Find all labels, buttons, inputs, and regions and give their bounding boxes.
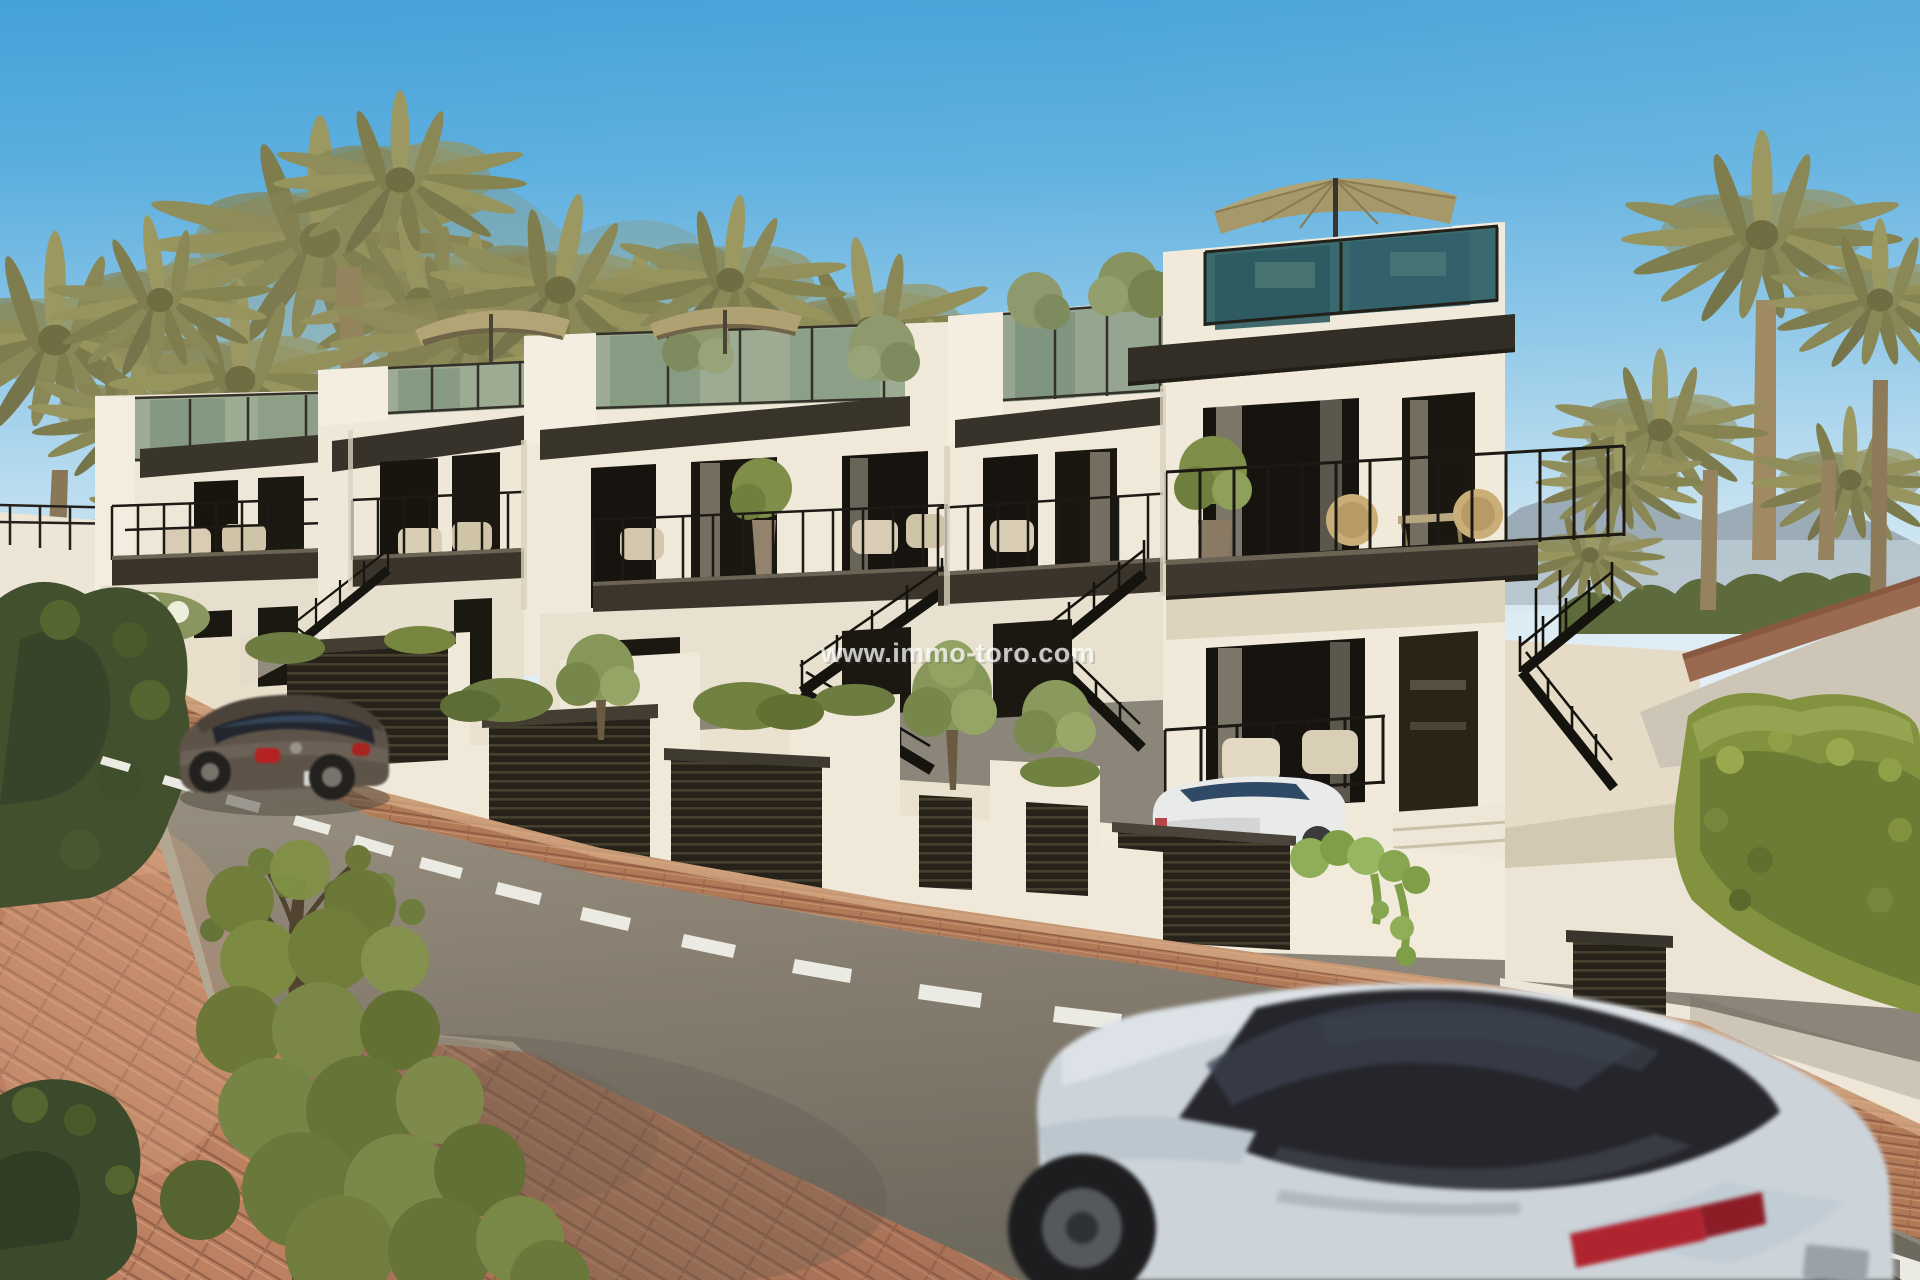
svg-text:www.immo-toro.com: www.immo-toro.com <box>820 638 1096 668</box>
